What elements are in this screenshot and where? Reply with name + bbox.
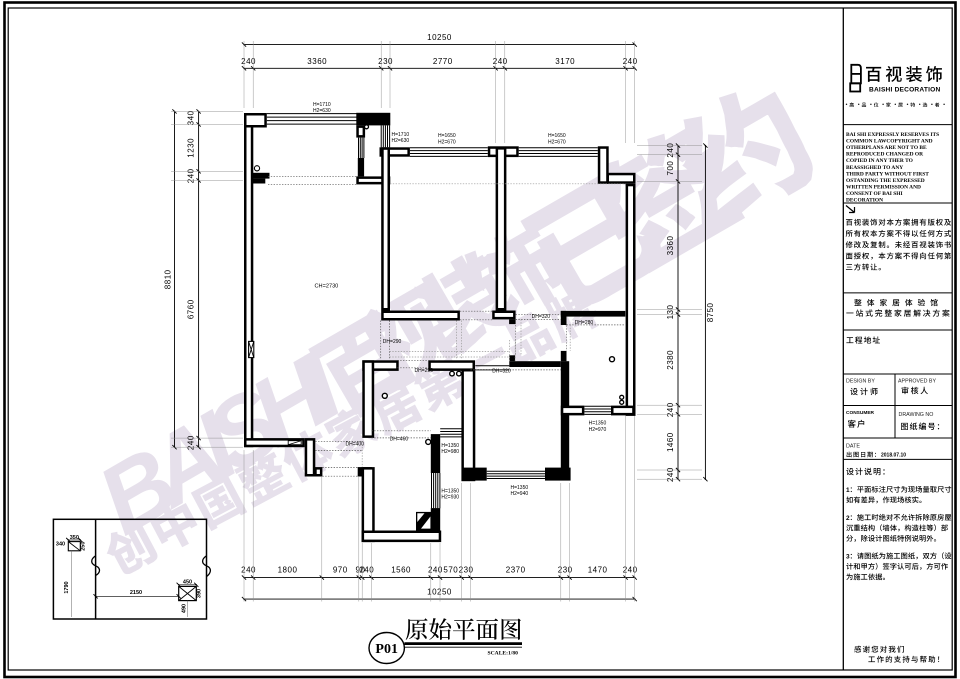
svg-text:240: 240: [666, 402, 675, 417]
svg-text:8810: 8810: [164, 269, 173, 289]
svg-text:240: 240: [623, 57, 638, 66]
svg-text:DATE: DATE: [846, 443, 860, 449]
svg-text:OSTANDING THE EXPRESSED: OSTANDING THE EXPRESSED: [846, 178, 925, 184]
svg-text:CONSUMER: CONSUMER: [846, 410, 875, 416]
svg-text:130: 130: [666, 305, 675, 320]
svg-text:240: 240: [187, 168, 196, 183]
svg-text:240: 240: [241, 57, 256, 66]
svg-text:240: 240: [359, 566, 374, 575]
svg-text:DH=460: DH=460: [390, 436, 409, 442]
svg-text:3360: 3360: [666, 236, 675, 256]
svg-text:BAISHI DECORATION: BAISHI DECORATION: [869, 86, 940, 93]
svg-text:BEASSIGHED TO ANY: BEASSIGHED TO ANY: [846, 165, 903, 171]
svg-text:390: 390: [196, 589, 202, 598]
svg-text:700: 700: [666, 161, 675, 176]
svg-text:REPRODUCED CHANGED OR: REPRODUCED CHANGED OR: [846, 152, 923, 158]
svg-text:H2=940: H2=940: [511, 491, 529, 497]
svg-text:10250: 10250: [427, 33, 452, 42]
svg-text:2380: 2380: [666, 350, 675, 370]
svg-text:340: 340: [56, 541, 65, 547]
svg-text:490: 490: [182, 604, 188, 613]
svg-text:2770: 2770: [433, 57, 453, 66]
svg-text:H=1350: H=1350: [589, 421, 607, 427]
svg-text:3360: 3360: [307, 57, 327, 66]
svg-text:1800: 1800: [278, 566, 298, 575]
svg-text:H=1350: H=1350: [441, 488, 459, 494]
svg-text:H2=980: H2=980: [441, 449, 459, 455]
svg-text:DH=320: DH=320: [492, 368, 511, 374]
svg-text:3170: 3170: [555, 57, 575, 66]
svg-text:1: 1: [846, 487, 850, 494]
svg-text:H=1710: H=1710: [313, 102, 331, 108]
svg-text:230: 230: [378, 57, 393, 66]
svg-text:2018.07.10: 2018.07.10: [881, 453, 906, 459]
svg-text:P01: P01: [375, 642, 398, 657]
svg-text:DH=320: DH=320: [532, 314, 551, 320]
svg-text:H=1650: H=1650: [438, 133, 456, 139]
svg-text:H2=930: H2=930: [441, 495, 459, 501]
svg-text:1230: 1230: [187, 138, 196, 158]
svg-text:240: 240: [187, 435, 196, 450]
svg-text:OTHERPLANS ARE NOT TO BE: OTHERPLANS ARE NOT TO BE: [846, 145, 927, 151]
svg-text:CONSENT OF BAI SHI: CONSENT OF BAI SHI: [846, 191, 903, 197]
svg-text:240: 240: [666, 143, 675, 158]
svg-text:SCALE:1/80: SCALE:1/80: [488, 651, 519, 657]
svg-text:250: 250: [81, 542, 87, 551]
svg-text:1470: 1470: [588, 566, 608, 575]
svg-text:DH=280: DH=280: [575, 320, 594, 326]
svg-text:240: 240: [666, 467, 675, 482]
svg-text:6760: 6760: [187, 299, 196, 319]
svg-text:H=1350: H=1350: [511, 485, 529, 491]
svg-text:570: 570: [443, 566, 458, 575]
svg-text:8750: 8750: [706, 302, 715, 322]
svg-text:DH=290: DH=290: [383, 339, 402, 345]
svg-text:COMMON LAWCOPYRIGHT AND: COMMON LAWCOPYRIGHT AND: [846, 139, 933, 145]
svg-text:240: 240: [428, 566, 443, 575]
svg-text:APPROVED BY: APPROVED BY: [898, 378, 936, 384]
svg-text:1560: 1560: [391, 566, 411, 575]
svg-text:H=1350: H=1350: [441, 443, 459, 449]
svg-text:DH=400: DH=400: [346, 442, 365, 448]
svg-text:340: 340: [187, 110, 196, 125]
svg-text:DRAWING NO: DRAWING NO: [899, 412, 934, 418]
svg-text:H2=970: H2=970: [589, 427, 607, 433]
svg-text:H2=670: H2=670: [438, 139, 456, 145]
svg-text:THIRD PARTY WITHOUT FIRST: THIRD PARTY WITHOUT FIRST: [846, 171, 929, 177]
svg-text:CH=2730: CH=2730: [315, 284, 339, 290]
svg-text:2150: 2150: [130, 590, 142, 596]
svg-text:H2=630: H2=630: [392, 138, 410, 144]
svg-text:970: 970: [333, 566, 348, 575]
svg-text:BAI SHI EXPRESSLY RESERVES ITS: BAI SHI EXPRESSLY RESERVES ITS: [846, 132, 939, 138]
svg-text:H=1710: H=1710: [392, 132, 410, 138]
svg-text:1460: 1460: [666, 432, 675, 452]
svg-text:230: 230: [558, 566, 573, 575]
svg-text:240: 240: [623, 566, 638, 575]
svg-text:3: 3: [846, 554, 850, 561]
svg-text:240: 240: [493, 57, 508, 66]
svg-text:H=1650: H=1650: [548, 133, 566, 139]
svg-text:WRITTEN PERMISSION AND: WRITTEN PERMISSION AND: [846, 184, 921, 190]
svg-text:230: 230: [459, 566, 474, 575]
svg-text:DESIGN BY: DESIGN BY: [846, 378, 875, 384]
svg-text:H2=670: H2=670: [548, 139, 566, 145]
svg-text:1790: 1790: [64, 581, 70, 593]
svg-text:COPIED IN ANY THER TO: COPIED IN ANY THER TO: [846, 158, 913, 164]
svg-text:240: 240: [241, 566, 256, 575]
svg-text:2: 2: [846, 515, 850, 522]
svg-text:DH=290: DH=290: [415, 368, 434, 374]
svg-text:2370: 2370: [506, 566, 526, 575]
svg-text:H2=630: H2=630: [313, 108, 331, 114]
